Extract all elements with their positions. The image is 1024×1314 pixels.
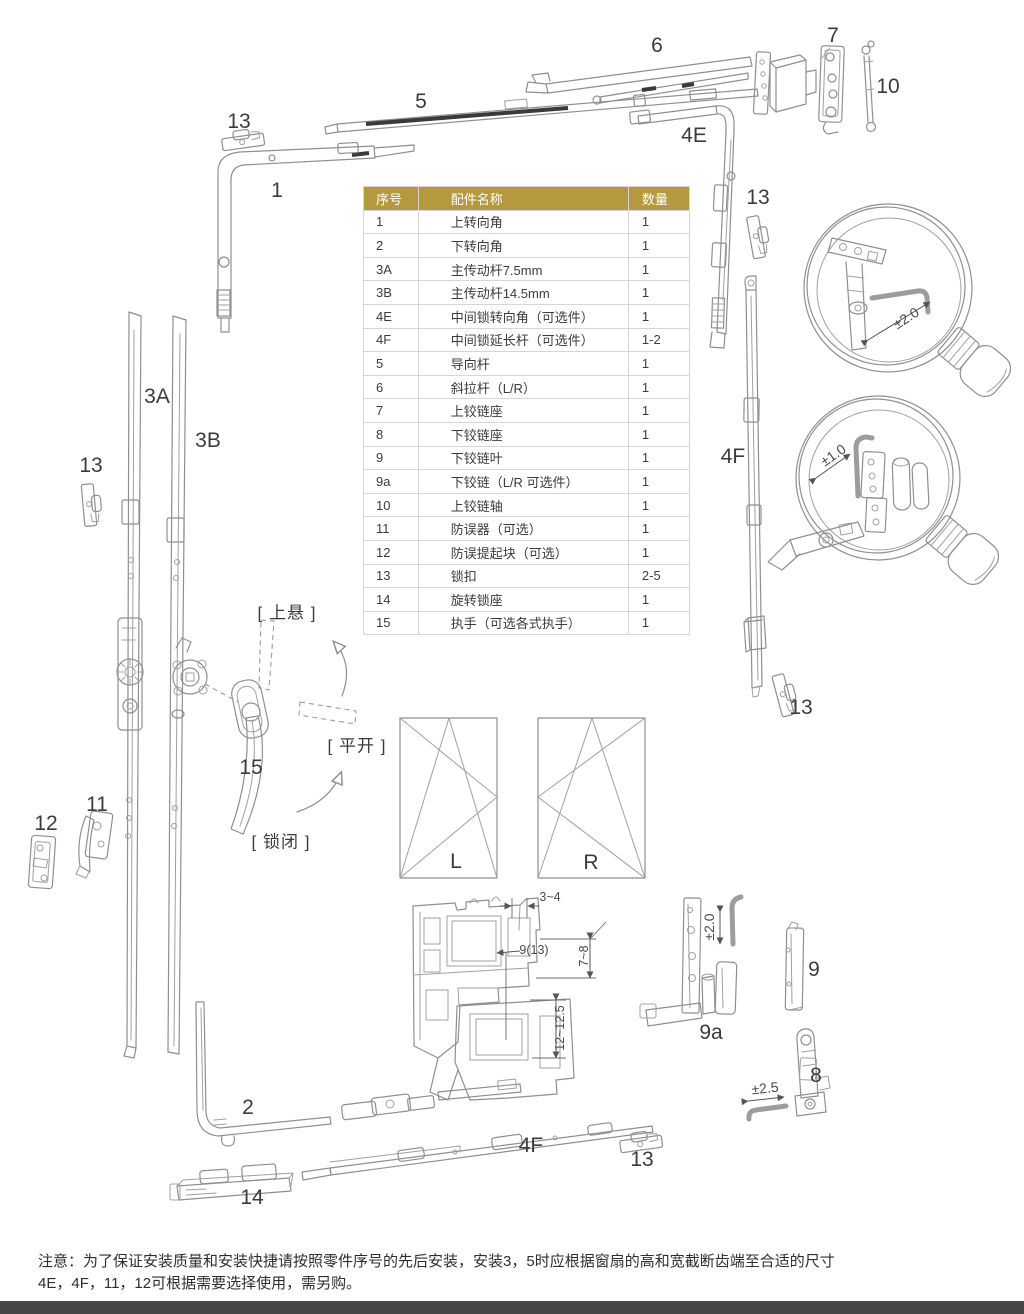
table-row: 8下铰链座1 [364,422,690,446]
part-name: 导向杆 [418,352,628,376]
part-name: 下铰链座 [418,422,628,446]
note-line-1: 注意：为了保证安装质量和安装快捷请按照零件序号的先后安装，安装3，5时应根据窗扇… [38,1251,988,1273]
table-row: 11防误器（可选）1 [364,517,690,541]
label-4F: 4F [721,445,746,469]
table-row: 4E中间锁转向角（可选件）1 [364,304,690,328]
label-9(13): 9(13) [519,943,548,957]
part-no: 12 [364,540,419,564]
part-no: 9a [364,470,419,494]
label-2: 2 [242,1096,254,1120]
label-13: 13 [630,1148,653,1172]
part-qty: 1 [628,517,689,541]
installation-note: 注意：为了保证安装质量和安装快捷请按照零件序号的先后安装，安装3，5时应根据窗扇… [38,1251,988,1295]
table-row: 13锁扣2-5 [364,564,690,588]
part-name: 旋转锁座 [418,588,628,612]
label-: [ 平开 ] [328,732,387,757]
part-no: 4E [364,304,419,328]
label-L: L [450,850,462,874]
part-no: 13 [364,564,419,588]
part-name: 防误器（可选） [418,517,628,541]
part-no: 3A [364,257,419,281]
column-header-2: 配件名称 [418,187,628,211]
part-name: 下转向角 [418,234,628,258]
part-name: 下铰链（L/R 可选件） [418,470,628,494]
part-name: 中间锁延长杆（可选件） [418,328,628,352]
label-4E: 4E [681,124,707,148]
label-5: 5 [415,90,427,114]
label-8: 8 [810,1064,822,1088]
part-qty: 1 [628,399,689,423]
part-name: 主传动杆7.5mm [418,257,628,281]
part-no: 14 [364,588,419,612]
table-row: 2下转向角1 [364,234,690,258]
label-4F: 4F [519,1134,544,1158]
part-no: 8 [364,422,419,446]
part-no: 5 [364,352,419,376]
part-qty: 1 [628,493,689,517]
part-no: 10 [364,493,419,517]
label-7: 7 [827,24,839,48]
part-no: 6 [364,375,419,399]
table-row: 3A主传动杆7.5mm1 [364,257,690,281]
part-qty: 1 [628,540,689,564]
column-header-3: 数量 [628,187,689,211]
label-14: 14 [240,1186,263,1210]
part-name: 中间锁转向角（可选件） [418,304,628,328]
part-no: 1 [364,210,419,234]
label-13: 13 [79,454,102,478]
parts-table: 序号配件名称数量 1上转向角12下转向角13A主传动杆7.5mm13B主传动杆1… [363,186,690,635]
label-3B: 3B [195,429,221,453]
label-15: 15 [239,756,262,780]
part-qty: 1 [628,304,689,328]
label-9: 9 [808,958,820,982]
part-no: 7 [364,399,419,423]
part-name: 锁扣 [418,564,628,588]
label-3~4: 3~4 [539,890,560,904]
label-±1.0: ±1.0 [817,441,848,470]
label-±2.5: ±2.5 [751,1079,780,1098]
table-row: 5导向杆1 [364,352,690,376]
table-row: 3B主传动杆14.5mm1 [364,281,690,305]
label-13: 13 [746,186,769,210]
part-no: 15 [364,611,419,635]
part-no: 3B [364,281,419,305]
label-7~8: 7~8 [577,945,591,966]
part-name: 斜拉杆（L/R） [418,375,628,399]
label-: [ 上悬 ] [258,599,317,624]
label-3A: 3A [144,385,170,409]
table-row: 6斜拉杆（L/R）1 [364,375,690,399]
part-qty: 1 [628,257,689,281]
table-row: 1上转向角1 [364,210,690,234]
label-±2.0: ±2.0 [701,913,717,940]
table-row: 12防误提起块（可选）1 [364,540,690,564]
part-name: 上铰链轴 [418,493,628,517]
table-row: 14旋转锁座1 [364,588,690,612]
part-qty: 1 [628,470,689,494]
part-no: 9 [364,446,419,470]
part-qty: 2-5 [628,564,689,588]
label-12: 12 [34,812,57,836]
label-13: 13 [227,110,250,134]
part-name: 主传动杆14.5mm [418,281,628,305]
part-qty: 1 [628,210,689,234]
part-qty: 1 [628,352,689,376]
part-qty: 1 [628,234,689,258]
part-qty: 1 [628,588,689,612]
part-name: 执手（可选各式执手） [418,611,628,635]
part-qty: 1-2 [628,328,689,352]
label-13: 13 [789,696,812,720]
part-qty: 1 [628,611,689,635]
label-11: 11 [86,793,108,817]
label-12~12.5: 12~12.5 [553,1005,567,1051]
part-qty: 1 [628,446,689,470]
page: 131564E710133A3B134F131511122144F139a98L… [0,0,1024,1314]
label-10: 10 [876,75,899,99]
table-row: 4F中间锁延长杆（可选件）1-2 [364,328,690,352]
column-header-1: 序号 [364,187,419,211]
label-R: R [583,851,598,875]
table-row: 9下铰链叶1 [364,446,690,470]
table-row: 9a下铰链（L/R 可选件）1 [364,470,690,494]
label-9a: 9a [699,1021,722,1045]
part-name: 防误提起块（可选） [418,540,628,564]
parts-table-header: 序号配件名称数量 [364,187,690,211]
table-row: 15执手（可选各式执手）1 [364,611,690,635]
footer-bar [0,1301,1024,1314]
label-6: 6 [651,34,663,58]
part-no: 2 [364,234,419,258]
label-: [ 锁闭 ] [252,828,311,853]
part-qty: 1 [628,422,689,446]
part-qty: 1 [628,375,689,399]
table-row: 7上铰链座1 [364,399,690,423]
note-line-2: 4E，4F，11，12可根据需要选择使用，需另购。 [38,1273,988,1295]
part-no: 11 [364,517,419,541]
part-name: 上转向角 [418,210,628,234]
part-no: 4F [364,328,419,352]
part-name: 上铰链座 [418,399,628,423]
part-qty: 1 [628,281,689,305]
part-name: 下铰链叶 [418,446,628,470]
label-1: 1 [271,179,283,203]
table-row: 10上铰链轴1 [364,493,690,517]
label-±2.0: ±2.0 [890,304,921,332]
